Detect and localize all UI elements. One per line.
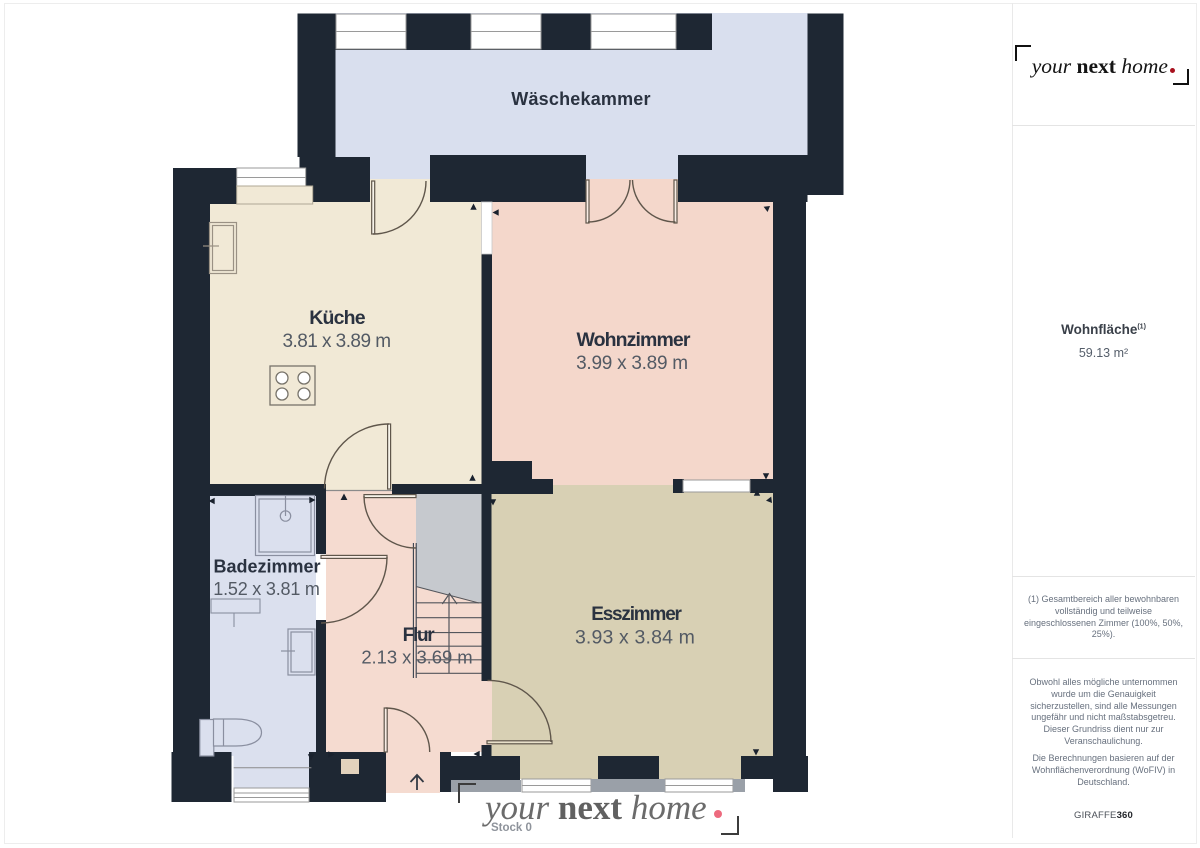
svg-text:Wäschekammer: Wäschekammer — [511, 89, 650, 109]
svg-text:3.81 x 3.89 m: 3.81 x 3.89 m — [283, 331, 391, 352]
svg-text:Esszimmer: Esszimmer — [591, 604, 682, 625]
svg-text:Küche: Küche — [309, 307, 366, 329]
svg-text:3.99 x 3.89 m: 3.99 x 3.89 m — [576, 353, 688, 374]
svg-text:Flur: Flur — [403, 625, 436, 646]
svg-text:1.52 x 3.81 m: 1.52 x 3.81 m — [213, 579, 319, 599]
svg-text:Wohnzimmer: Wohnzimmer — [576, 329, 690, 351]
svg-text:2.13 x 3.69 m: 2.13 x 3.69 m — [361, 647, 472, 668]
svg-text:Badezimmer: Badezimmer — [213, 557, 320, 577]
svg-text:3.93 x 3.84 m: 3.93 x 3.84 m — [575, 627, 695, 649]
